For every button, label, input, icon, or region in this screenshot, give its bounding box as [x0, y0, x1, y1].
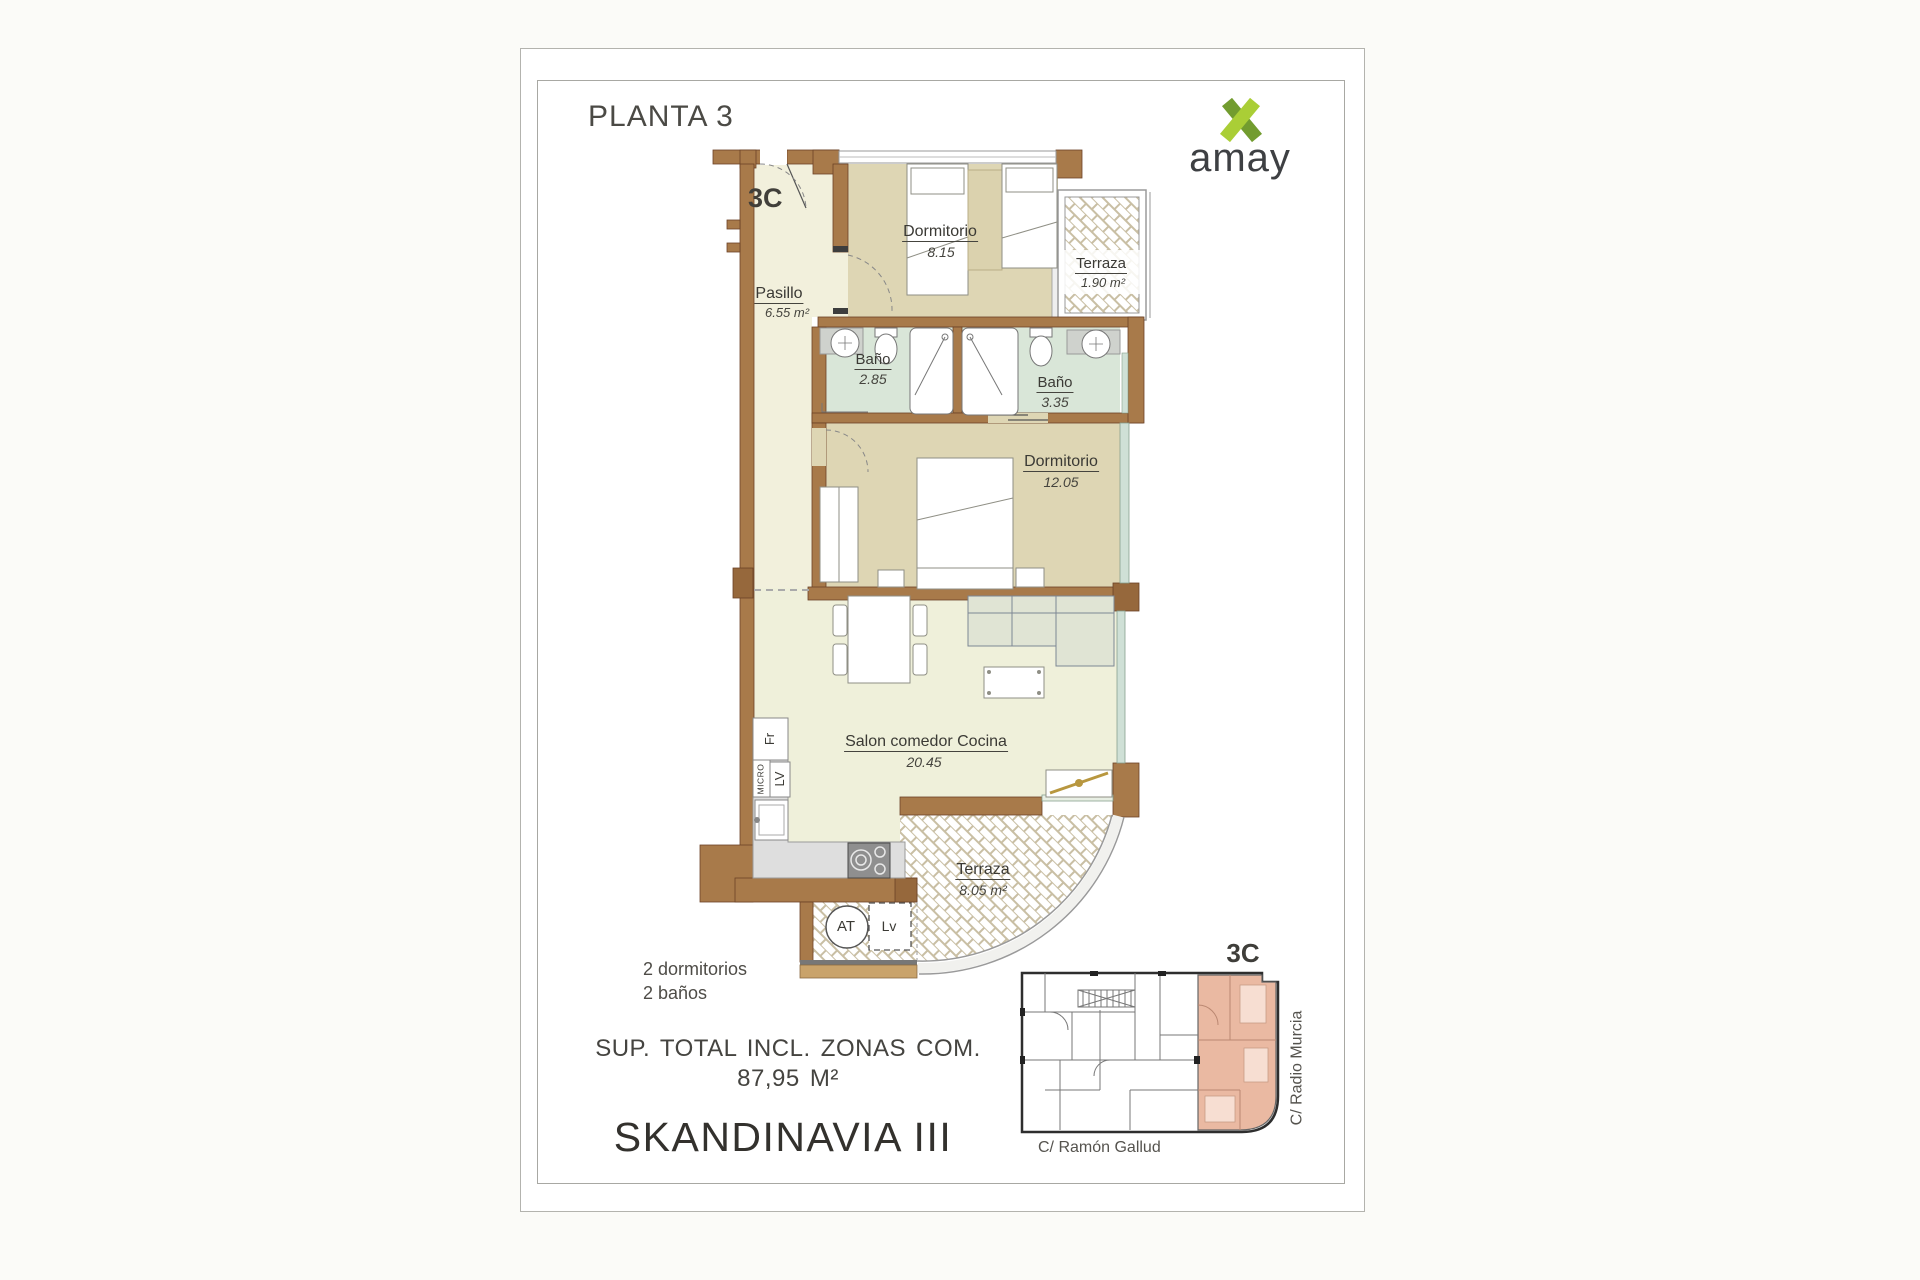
- unit-label: 3C: [748, 184, 783, 212]
- street-label-right: C/ Radio Murcia: [1290, 1011, 1307, 1126]
- room-bano1-area: 2.85: [859, 372, 886, 387]
- room-dormitorio1-name: Dormitorio: [902, 224, 978, 241]
- keyplan-drawing: [1020, 971, 1278, 1132]
- room-salon-area: 20.45: [906, 755, 941, 770]
- room-terraza1-name: Terraza: [1075, 256, 1127, 272]
- microwave-label: MICRO: [757, 764, 766, 795]
- project-name: SKANDINAVIA III: [614, 1116, 952, 1159]
- room-dormitorio1-area: 8.15: [927, 245, 954, 260]
- room-dormitorio2-area: 12.05: [1043, 475, 1078, 490]
- street-label-bottom: C/ Ramón Gallud: [1038, 1140, 1161, 1157]
- room-bano1-name: Baño: [854, 352, 891, 368]
- total-area-caption: SUP. TOTAL INCL. ZONAS COM.: [595, 1036, 981, 1061]
- room-bano2-name: Baño: [1036, 375, 1073, 391]
- room-terraza2-area: 8.05 m²: [959, 883, 1006, 898]
- room-terraza2-name: Terraza: [955, 862, 1010, 879]
- washer-label: Lv: [882, 919, 897, 934]
- bedrooms-count: 2 dormitorios: [643, 960, 747, 979]
- room-pasillo-area: 6.55 m²: [765, 306, 809, 320]
- room-bano2-area: 3.35: [1041, 395, 1068, 410]
- room-salon-name: Salon comedor Cocina: [844, 734, 1008, 751]
- page-title: PLANTA 3: [588, 101, 734, 133]
- total-area-value: 87,95 M²: [737, 1066, 839, 1091]
- room-dormitorio2-name: Dormitorio: [1023, 454, 1099, 471]
- floorplan-drawing: [570, 130, 1360, 1190]
- bathrooms-count: 2 baños: [643, 984, 707, 1003]
- water-heater-label: AT: [837, 919, 855, 935]
- room-terraza1-area: 1.90 m²: [1081, 276, 1125, 290]
- keyplan-unit-label: 3C: [1226, 940, 1259, 967]
- room-pasillo-name: Pasillo: [754, 286, 803, 303]
- floorplan-sheet: PLANTA 3 amay: [0, 0, 1920, 1280]
- fridge-label: Fr: [763, 733, 777, 745]
- dishwasher-label: LV: [773, 772, 787, 787]
